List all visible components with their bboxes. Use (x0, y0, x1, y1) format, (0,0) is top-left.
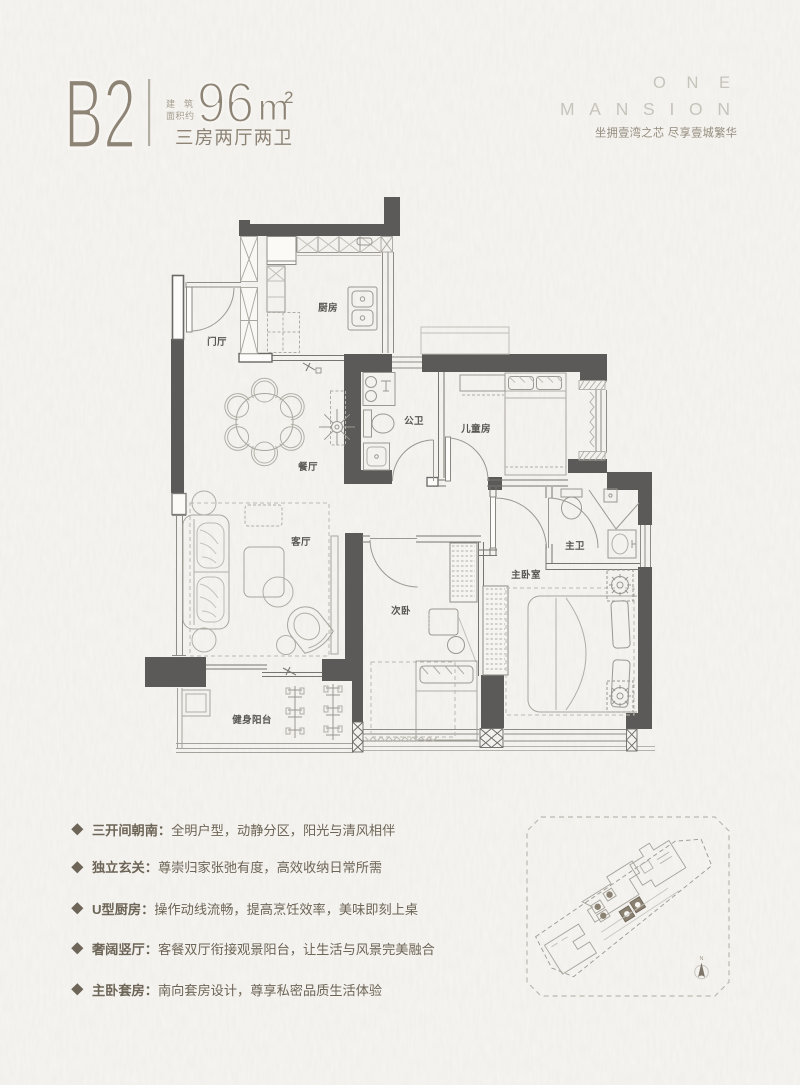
svg-text:主卫: 主卫 (565, 540, 585, 552)
svg-text:奢阔竖厅：客餐双厅衔接观景阳台，让生活与风景完美融合: 奢阔竖厅：客餐双厅衔接观景阳台，让生活与风景完美融合 (91, 941, 435, 957)
svg-text:儿童房: 儿童房 (460, 423, 491, 435)
svg-text:厨房: 厨房 (318, 302, 338, 314)
svg-text:主卧室: 主卧室 (511, 569, 541, 581)
svg-text:主卧套房：南向套房设计，尊享私密品质生活体验: 主卧套房：南向套房设计，尊享私密品质生活体验 (92, 982, 382, 998)
svg-text:公卫: 公卫 (404, 416, 424, 427)
svg-text:健身阳台: 健身阳台 (232, 714, 272, 726)
svg-text:次卧: 次卧 (391, 605, 411, 617)
svg-text:客厅: 客厅 (290, 536, 311, 548)
svg-text:餐厅: 餐厅 (297, 461, 318, 473)
svg-text:ONE: ONE (653, 74, 730, 92)
svg-text:三房两厅两卫: 三房两厅两卫 (175, 127, 292, 148)
svg-text:96: 96 (197, 71, 254, 135)
svg-text:三开间朝南：全明户型，动静分区，阳光与清风相伴: 三开间朝南：全明户型，动静分区，阳光与清风相伴 (92, 822, 395, 838)
svg-text:B2: B2 (64, 58, 136, 169)
svg-text:U型厨房：操作动线流畅，提高烹饪效率，美味即刻上桌: U型厨房：操作动线流畅，提高烹饪效率，美味即刻上桌 (92, 901, 418, 917)
svg-text:坐拥壹湾之芯 尽享壹城繁华: 坐拥壹湾之芯 尽享壹城繁华 (595, 126, 737, 140)
svg-text:N: N (700, 956, 704, 962)
svg-text:独立玄关：尊崇归家张弛有度，高效收纳日常所需: 独立玄关：尊崇归家张弛有度，高效收纳日常所需 (92, 859, 382, 875)
svg-text:面积约: 面积约 (166, 110, 195, 121)
svg-text:门厅: 门厅 (207, 336, 227, 348)
svg-text:2: 2 (284, 88, 293, 107)
